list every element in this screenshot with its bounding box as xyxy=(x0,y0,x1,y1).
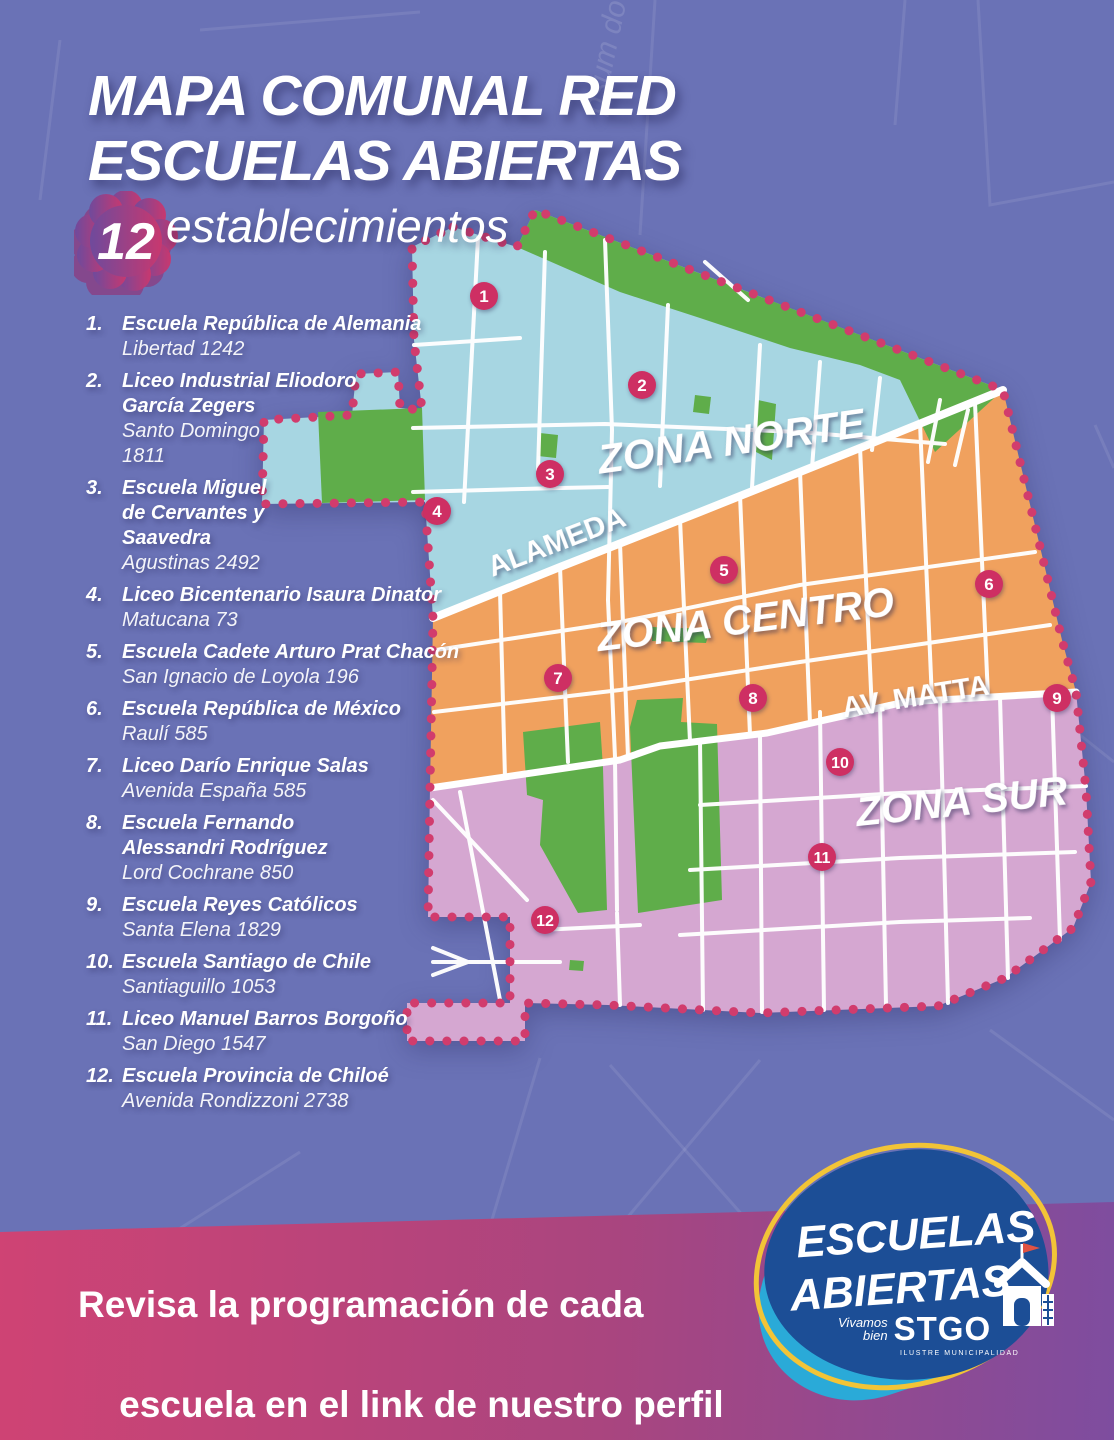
marker-number: 11 xyxy=(814,850,831,867)
school-item-3: 3.Escuela Miguel de Cervantes y Saavedra… xyxy=(86,476,446,576)
footer-line-1: Revisa la programación de cada xyxy=(78,1284,644,1325)
school-list: 1.Escuela República de AlemaniaLibertad … xyxy=(86,312,446,1114)
tagline-word-2: bien xyxy=(863,1328,888,1343)
school-name: Escuela República de México xyxy=(122,697,401,722)
marker-number: 7 xyxy=(553,669,562,688)
marker-number: 1 xyxy=(479,287,488,306)
school-number: 12. xyxy=(86,1064,118,1114)
school-number: 9. xyxy=(86,893,118,943)
school-name: Escuela Santiago de Chile xyxy=(122,950,371,975)
school-house-icon xyxy=(990,1240,1054,1332)
school-item-1: 1.Escuela República de AlemaniaLibertad … xyxy=(86,312,446,362)
escuelas-abiertas-logo: ESCUELAS ABIERTAS Vivamosbien STGO ILUST… xyxy=(738,1138,1088,1408)
school-address: Lord Cochrane 850 xyxy=(122,861,328,886)
school-number: 10. xyxy=(86,950,118,1000)
school-address: San Ignacio de Loyola 196 xyxy=(122,665,459,690)
school-address: San Diego 1547 xyxy=(122,1032,408,1057)
map-marker-1: 1 xyxy=(470,282,498,310)
marker-number: 5 xyxy=(719,561,728,580)
school-address: Santo Domingo 1811 xyxy=(122,419,356,469)
park-small-4 xyxy=(569,960,584,971)
school-item-4: 4.Liceo Bicentenario Isaura DinatorMatuc… xyxy=(86,583,446,633)
school-item-12: 12.Escuela Provincia de ChiloéAvenida Ro… xyxy=(86,1064,446,1114)
school-name: Escuela Provincia de Chiloé xyxy=(122,1064,389,1089)
school-address: Santiaguillo 1053 xyxy=(122,975,371,1000)
school-item-5: 5.Escuela Cadete Arturo Prat ChacónSan I… xyxy=(86,640,446,690)
marker-number: 3 xyxy=(545,465,554,484)
map-marker-3: 3 xyxy=(536,460,564,488)
map-marker-2: 2 xyxy=(628,371,656,399)
school-number: 5. xyxy=(86,640,118,690)
marker-number: 10 xyxy=(831,755,849,772)
school-address: Matucana 73 xyxy=(122,608,441,633)
school-item-8: 8.Escuela Fernando Alessandri RodríguezL… xyxy=(86,811,446,886)
school-number: 2. xyxy=(86,369,118,469)
footer-line-2: escuela en el link de nuestro perfil xyxy=(119,1384,724,1425)
school-address: Agustinas 2492 xyxy=(122,551,267,576)
marker-number: 9 xyxy=(1052,689,1061,708)
school-name: Liceo Bicentenario Isaura Dinator xyxy=(122,583,441,608)
school-name: Escuela Fernando Alessandri Rodríguez xyxy=(122,811,328,861)
marker-number: 2 xyxy=(637,376,646,395)
school-item-9: 9.Escuela Reyes CatólicosSanta Elena 182… xyxy=(86,893,446,943)
map-marker-11: 11 xyxy=(808,843,836,871)
title-line-2: ESCUELAS ABIERTAS xyxy=(88,129,681,193)
flower-badge-icon: 12 xyxy=(74,191,178,295)
school-item-10: 10.Escuela Santiago de ChileSantiaguillo… xyxy=(86,950,446,1000)
map-marker-6: 6 xyxy=(975,570,1003,598)
school-number: 4. xyxy=(86,583,118,633)
count-badge-number: 12 xyxy=(97,213,155,271)
school-item-7: 7.Liceo Darío Enrique SalasAvenida Españ… xyxy=(86,754,446,804)
school-item-11: 11.Liceo Manuel Barros BorgoñoSan Diego … xyxy=(86,1007,446,1057)
map-marker-9: 9 xyxy=(1043,684,1071,712)
map-marker-8: 8 xyxy=(739,684,767,712)
municipality-label: ILUSTRE MUNICIPALIDAD xyxy=(900,1350,1019,1357)
school-name: Escuela Cadete Arturo Prat Chacón xyxy=(122,640,459,665)
school-number: 3. xyxy=(86,476,118,576)
school-address: Avenida España 585 xyxy=(122,779,369,804)
stgo-brand: STGO xyxy=(894,1310,992,1348)
logo-tagline: Vivamosbien STGO xyxy=(838,1310,991,1348)
school-number: 6. xyxy=(86,697,118,747)
title-line-1: MAPA COMUNAL RED xyxy=(88,64,676,128)
school-number: 11. xyxy=(86,1007,118,1057)
school-address: Santa Elena 1829 xyxy=(122,918,358,943)
school-number: 7. xyxy=(86,754,118,804)
map-marker-5: 5 xyxy=(710,556,738,584)
school-number: 1. xyxy=(86,312,118,362)
school-name: Escuela Miguel de Cervantes y Saavedra xyxy=(122,476,267,551)
school-address: Raulí 585 xyxy=(122,722,401,747)
school-name: Liceo Darío Enrique Salas xyxy=(122,754,369,779)
infographic-page: ZONA NORTE ZONA CENTRO ZONA SUR ALAMEDA … xyxy=(0,0,1114,1440)
school-address: Libertad 1242 xyxy=(122,337,421,362)
footer-message: Revisa la programación de cada escuela e… xyxy=(78,1280,724,1430)
marker-number: 8 xyxy=(748,689,757,708)
map-marker-7: 7 xyxy=(544,664,572,692)
page-title: MAPA COMUNAL RED ESCUELAS ABIERTAS xyxy=(88,64,681,194)
school-name: Escuela Reyes Católicos xyxy=(122,893,358,918)
school-address: Avenida Rondizzoni 2738 xyxy=(122,1089,389,1114)
map-marker-12: 12 xyxy=(531,906,559,934)
school-name: Liceo Industrial Eliodoro García Zegers xyxy=(122,369,356,419)
marker-number: 6 xyxy=(984,575,993,594)
school-item-2: 2.Liceo Industrial Eliodoro García Zeger… xyxy=(86,369,446,469)
marker-number: 12 xyxy=(536,913,554,930)
school-name: Escuela República de Alemania xyxy=(122,312,421,337)
map-marker-10: 10 xyxy=(826,748,854,776)
count-badge-label: establecimientos xyxy=(166,199,509,253)
school-item-6: 6.Escuela República de MéxicoRaulí 585 xyxy=(86,697,446,747)
school-name: Liceo Manuel Barros Borgoño xyxy=(122,1007,408,1032)
park-small-2 xyxy=(693,395,711,414)
school-number: 8. xyxy=(86,811,118,886)
